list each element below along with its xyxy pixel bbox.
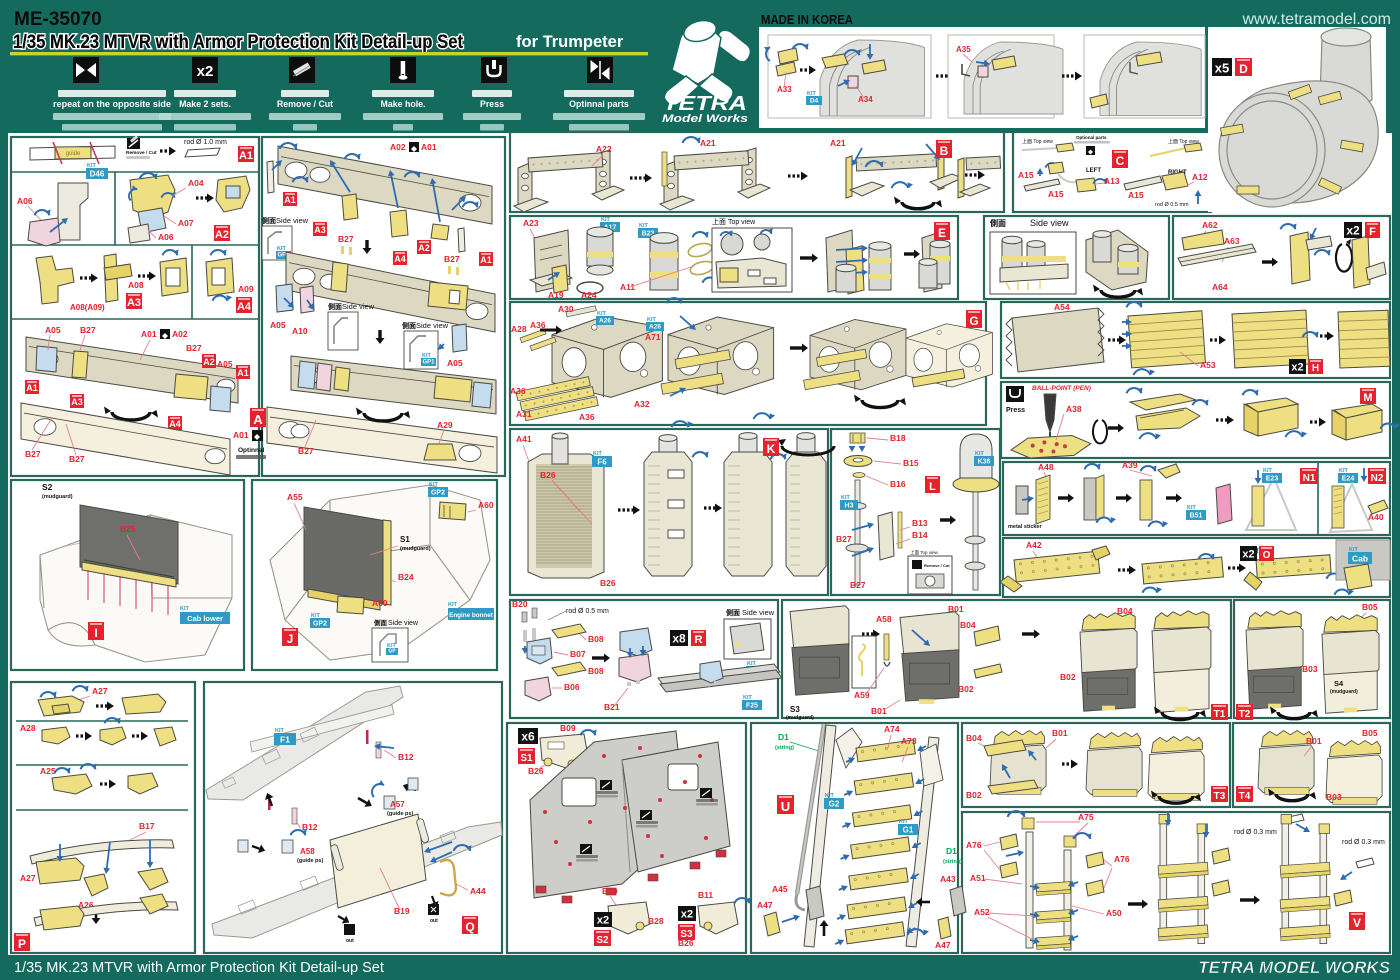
svg-text:A47: A47 — [757, 900, 773, 910]
svg-text:A50: A50 — [1106, 908, 1122, 918]
svg-text:A05: A05 — [217, 359, 233, 369]
svg-text:BALL-POINT (PEN): BALL-POINT (PEN) — [1032, 385, 1091, 392]
svg-text:B27: B27 — [298, 446, 314, 456]
svg-text:B21: B21 — [604, 702, 620, 712]
svg-text:A28: A28 — [511, 324, 527, 334]
svg-text:A21: A21 — [830, 138, 846, 148]
svg-text:Press: Press — [1006, 407, 1025, 414]
svg-text:S3: S3 — [790, 705, 800, 714]
svg-text:S1: S1 — [400, 535, 410, 544]
svg-text:KIT: KIT — [448, 602, 458, 608]
svg-text:A57: A57 — [390, 800, 405, 809]
svg-text:A05: A05 — [447, 358, 463, 368]
svg-text:B08: B08 — [588, 634, 604, 644]
svg-text:A71: A71 — [645, 332, 661, 342]
svg-text:x2: x2 — [1242, 549, 1254, 561]
svg-text:A02: A02 — [172, 329, 188, 339]
svg-text:Side view: Side view — [416, 321, 449, 330]
svg-text:for Trumpeter: for Trumpeter — [516, 33, 624, 51]
svg-text:T4: T4 — [1239, 791, 1251, 802]
svg-text:A34: A34 — [858, 95, 873, 104]
svg-text:B12: B12 — [398, 752, 414, 762]
svg-text:TETRA MODEL WORKS: TETRA MODEL WORKS — [1198, 958, 1390, 977]
svg-text:J: J — [287, 632, 294, 646]
svg-text:(mudguard): (mudguard) — [400, 546, 431, 552]
svg-text:A01: A01 — [233, 430, 249, 440]
svg-text:R: R — [695, 634, 703, 646]
svg-text:A06: A06 — [17, 196, 33, 206]
svg-text:B27: B27 — [25, 449, 41, 459]
svg-text:U: U — [781, 799, 790, 814]
svg-text:B26: B26 — [540, 470, 556, 480]
svg-text:B14: B14 — [912, 530, 928, 540]
svg-text:K: K — [767, 442, 776, 456]
svg-text:rod Ø 0.5 mm: rod Ø 0.5 mm — [1155, 202, 1189, 208]
svg-text:A01: A01 — [141, 329, 157, 339]
svg-text:T1: T1 — [1214, 709, 1226, 720]
svg-text:Side view: Side view — [388, 620, 419, 627]
svg-text:A2: A2 — [203, 357, 215, 367]
svg-text:x5: x5 — [1215, 61, 1229, 76]
svg-text:N2: N2 — [1371, 473, 1384, 484]
svg-text:F: F — [1369, 226, 1376, 238]
svg-text:Optional parts: Optional parts — [1076, 135, 1107, 140]
svg-text:A45: A45 — [772, 884, 788, 894]
svg-text:上面 Top view: 上面 Top view — [910, 549, 939, 556]
svg-text:A12: A12 — [1192, 172, 1208, 182]
svg-text:D: D — [1239, 62, 1248, 76]
svg-text:側面: 側面 — [373, 618, 388, 627]
svg-text:B27: B27 — [186, 343, 202, 353]
svg-text:B01: B01 — [1052, 728, 1068, 738]
svg-text:I: I — [94, 626, 97, 640]
svg-text:側面: 側面 — [401, 321, 416, 330]
svg-text:rod Ø 0.3 mm: rod Ø 0.3 mm — [1234, 829, 1277, 836]
svg-text:A4: A4 — [394, 254, 406, 264]
svg-text:側面: 側面 — [725, 608, 740, 617]
svg-text:(string): (string) — [943, 859, 962, 865]
svg-text:B04: B04 — [960, 620, 976, 630]
svg-text:A3: A3 — [314, 225, 326, 235]
svg-text:B03: B03 — [1326, 792, 1342, 802]
svg-text:A76: A76 — [966, 840, 982, 850]
svg-text:A15: A15 — [1128, 190, 1144, 200]
svg-text:A47: A47 — [935, 940, 951, 950]
svg-text:A48: A48 — [1038, 462, 1054, 472]
svg-text:A73: A73 — [901, 736, 917, 746]
svg-text:A15: A15 — [1018, 170, 1034, 180]
svg-text:metal sticker: metal sticker — [1008, 524, 1042, 530]
svg-text:A22: A22 — [596, 144, 612, 154]
svg-text:A13: A13 — [1104, 176, 1120, 186]
svg-text:A63: A63 — [1224, 236, 1240, 246]
svg-text:Side view: Side view — [1030, 218, 1069, 228]
svg-text:(guide ps): (guide ps) — [297, 858, 323, 864]
svg-text:A11: A11 — [620, 282, 635, 292]
svg-text:A1: A1 — [239, 150, 253, 162]
svg-text:B: B — [940, 144, 949, 158]
svg-text:guide: guide — [66, 151, 81, 157]
svg-text:C: C — [1116, 154, 1125, 168]
svg-text:A1: A1 — [284, 195, 296, 205]
svg-text:Q: Q — [465, 920, 474, 934]
svg-text:A30: A30 — [558, 304, 574, 314]
svg-text:A25: A25 — [40, 766, 56, 776]
svg-text:rod Ø 1.0 mm: rod Ø 1.0 mm — [184, 139, 227, 146]
svg-text:B07: B07 — [570, 649, 586, 659]
svg-text:A3: A3 — [71, 397, 83, 407]
svg-text:Remove / Cut: Remove / Cut — [126, 150, 157, 156]
svg-text:B08: B08 — [588, 666, 604, 676]
svg-text:A55: A55 — [287, 492, 303, 502]
svg-text:MADE IN KOREA: MADE IN KOREA — [761, 12, 854, 27]
svg-text:A54: A54 — [1054, 302, 1070, 312]
svg-text:B01: B01 — [1306, 736, 1322, 746]
svg-text:A23: A23 — [523, 218, 539, 228]
svg-text:(mudguard): (mudguard) — [786, 715, 814, 721]
svg-text:O: O — [1263, 550, 1271, 561]
svg-text:A19: A19 — [548, 290, 564, 300]
svg-text:B25: B25 — [120, 524, 136, 534]
svg-text:D1: D1 — [946, 846, 957, 856]
svg-text:A09: A09 — [238, 284, 254, 294]
svg-text:上面 Top view: 上面 Top view — [1022, 138, 1053, 145]
svg-text:A10: A10 — [292, 326, 308, 336]
svg-text:B51: B51 — [1190, 512, 1203, 519]
svg-text:Cab lower: Cab lower — [187, 614, 223, 623]
svg-text:B10: B10 — [602, 886, 618, 896]
svg-text:H3: H3 — [845, 502, 854, 509]
svg-text:A31: A31 — [516, 409, 532, 419]
svg-text:A58: A58 — [300, 847, 315, 856]
svg-text:H: H — [1312, 363, 1319, 374]
svg-text:A: A — [253, 412, 263, 427]
svg-text:S1: S1 — [520, 753, 533, 764]
svg-text:A26: A26 — [649, 323, 661, 330]
svg-text:S2: S2 — [596, 935, 609, 946]
svg-text:B06: B06 — [564, 682, 580, 692]
svg-text:B27: B27 — [850, 580, 866, 590]
svg-text:E23: E23 — [1266, 475, 1279, 482]
svg-text:KIT: KIT — [180, 606, 190, 612]
svg-text:A62: A62 — [1202, 220, 1218, 230]
svg-text:D4: D4 — [810, 97, 819, 104]
svg-text:A3: A3 — [127, 297, 141, 309]
svg-text:E24: E24 — [1342, 475, 1355, 482]
svg-text:B27: B27 — [80, 325, 96, 335]
svg-text:側面: 側面 — [327, 302, 342, 311]
svg-text:A43: A43 — [940, 874, 956, 884]
svg-text:A76: A76 — [1114, 854, 1130, 864]
svg-text:Optinnal: Optinnal — [238, 447, 265, 454]
svg-text:B18: B18 — [890, 433, 906, 443]
svg-text:A4: A4 — [169, 419, 181, 429]
svg-text:A4: A4 — [237, 301, 252, 313]
svg-text:B09: B09 — [560, 723, 576, 733]
svg-text:B27: B27 — [338, 234, 354, 244]
svg-text:Optinnal parts: Optinnal parts — [569, 99, 629, 109]
svg-text:1/35 MK.23 MTVR with Armor Pro: 1/35 MK.23 MTVR with Armor Protection Ki… — [13, 32, 464, 53]
svg-text:A52: A52 — [974, 907, 990, 917]
svg-text:A05: A05 — [45, 325, 61, 335]
svg-text:A58: A58 — [876, 614, 892, 624]
svg-text:A53: A53 — [1200, 360, 1216, 370]
svg-text:A1: A1 — [26, 383, 38, 393]
svg-text:A24: A24 — [581, 290, 597, 300]
svg-text:A41: A41 — [516, 434, 532, 444]
svg-text:GP2: GP2 — [313, 620, 327, 627]
svg-text:GP2: GP2 — [431, 489, 445, 496]
svg-text:B13: B13 — [912, 518, 928, 528]
svg-text:A64: A64 — [1212, 282, 1228, 292]
svg-text:T2: T2 — [1239, 709, 1251, 720]
svg-text:x2: x2 — [1291, 362, 1303, 374]
svg-text:A74: A74 — [884, 724, 900, 734]
svg-text:B05: B05 — [1362, 602, 1378, 612]
svg-text:L: L — [929, 481, 936, 493]
svg-text:N1: N1 — [1303, 473, 1316, 484]
svg-text:A04: A04 — [188, 178, 204, 188]
svg-text:Remove / Cut: Remove / Cut — [924, 563, 950, 568]
svg-text:A28: A28 — [20, 723, 36, 733]
svg-text:B27: B27 — [444, 254, 460, 264]
svg-text:D46: D46 — [90, 169, 105, 178]
svg-text:rod Ø 0.5 mm: rod Ø 0.5 mm — [566, 608, 609, 615]
svg-text:B20: B20 — [512, 599, 528, 609]
svg-text:(mudguard): (mudguard) — [1330, 689, 1358, 695]
svg-text:S2: S2 — [42, 482, 53, 492]
svg-text:B01: B01 — [871, 706, 887, 716]
svg-text:上面 Top view: 上面 Top view — [712, 217, 756, 226]
svg-text:B02: B02 — [1060, 672, 1076, 682]
svg-text:A36: A36 — [510, 386, 526, 396]
svg-text:A32: A32 — [634, 399, 650, 409]
svg-text:B28: B28 — [648, 916, 664, 926]
svg-text:A08(A09): A08(A09) — [70, 303, 105, 312]
svg-text:A01: A01 — [421, 142, 437, 152]
svg-text:B03: B03 — [1302, 664, 1318, 674]
svg-text:A44: A44 — [470, 886, 486, 896]
svg-text:A06: A06 — [158, 232, 174, 242]
svg-text:B16: B16 — [890, 479, 906, 489]
svg-text:B24: B24 — [398, 572, 414, 582]
svg-text:A39: A39 — [1122, 460, 1138, 470]
svg-text:A40: A40 — [1368, 512, 1384, 522]
svg-text:A1: A1 — [237, 368, 249, 378]
svg-text:A60: A60 — [478, 500, 494, 510]
svg-text:A38: A38 — [1066, 404, 1082, 414]
svg-text:A2: A2 — [215, 229, 229, 241]
svg-text:P: P — [18, 937, 26, 951]
svg-text:ME-35070: ME-35070 — [14, 9, 102, 30]
svg-text:A02: A02 — [390, 142, 406, 152]
svg-text:A26: A26 — [599, 317, 611, 324]
svg-text:A08: A08 — [128, 280, 144, 290]
svg-text:A2: A2 — [418, 243, 430, 253]
svg-text:x6: x6 — [521, 730, 535, 744]
svg-text:Model Works: Model Works — [662, 113, 748, 125]
svg-text:G1: G1 — [903, 825, 914, 834]
svg-text:Engine bonnet: Engine bonnet — [449, 612, 494, 619]
svg-text:B02: B02 — [966, 790, 982, 800]
svg-text:www.tetramodel.com: www.tetramodel.com — [1242, 11, 1392, 28]
svg-text:B27: B27 — [836, 534, 852, 544]
svg-text:F6: F6 — [597, 457, 607, 466]
svg-text:T3: T3 — [1214, 791, 1226, 802]
svg-text:B19: B19 — [394, 906, 410, 916]
svg-text:out: out — [346, 938, 354, 944]
svg-text:1/35 MK.23 MTVR with Armor Pro: 1/35 MK.23 MTVR with Armor Protection Ki… — [14, 960, 384, 976]
svg-text:TETRA: TETRA — [663, 93, 747, 115]
svg-text:B26: B26 — [600, 578, 616, 588]
svg-text:Press: Press — [480, 99, 504, 109]
svg-text:x8: x8 — [672, 632, 686, 646]
svg-text:Make 2 sets.: Make 2 sets. — [179, 99, 231, 109]
svg-text:Side view: Side view — [342, 302, 375, 311]
svg-text:側面: 側面 — [989, 218, 1006, 228]
svg-text:G2: G2 — [829, 799, 840, 808]
svg-text:out: out — [430, 918, 438, 924]
svg-text:E: E — [938, 226, 946, 240]
svg-text:A75: A75 — [1078, 812, 1094, 822]
svg-text:(string): (string) — [775, 745, 794, 751]
svg-text:x2: x2 — [1346, 224, 1360, 238]
svg-text:Side view: Side view — [742, 608, 775, 617]
svg-text:x2: x2 — [197, 63, 214, 80]
svg-text:A29: A29 — [437, 420, 453, 430]
svg-text:A05: A05 — [270, 320, 286, 330]
svg-text:rod Ø 0.3 mm: rod Ø 0.3 mm — [1342, 839, 1385, 846]
svg-text:B11: B11 — [698, 890, 713, 900]
svg-text:A21: A21 — [700, 138, 716, 148]
svg-text:A60: A60 — [372, 598, 388, 608]
svg-text:Make hole.: Make hole. — [381, 99, 426, 109]
svg-text:D1: D1 — [778, 732, 789, 742]
svg-text:B04: B04 — [1117, 606, 1133, 616]
svg-text:G: G — [969, 314, 978, 328]
svg-text:x2: x2 — [681, 909, 693, 921]
svg-text:LEFT: LEFT — [1086, 168, 1101, 174]
svg-text:A36: A36 — [579, 412, 595, 422]
svg-text:B27: B27 — [69, 454, 85, 464]
svg-text:S4: S4 — [1334, 679, 1344, 688]
svg-text:Side view: Side view — [276, 216, 309, 225]
svg-text:A42: A42 — [1026, 540, 1042, 550]
svg-text:B04: B04 — [966, 733, 982, 743]
svg-text:F25: F25 — [746, 702, 758, 709]
svg-text:B05: B05 — [1362, 728, 1378, 738]
svg-text:F1: F1 — [280, 734, 290, 744]
svg-text:B15: B15 — [903, 458, 919, 468]
svg-text:K36: K36 — [978, 458, 991, 465]
svg-text:x2: x2 — [597, 915, 609, 927]
svg-text:M: M — [1363, 392, 1372, 404]
svg-text:GP: GP — [388, 648, 396, 654]
svg-text:A07: A07 — [178, 218, 194, 228]
svg-text:Remove / Cut: Remove / Cut — [277, 99, 333, 109]
svg-text:A51: A51 — [970, 873, 986, 883]
svg-text:A1: A1 — [480, 255, 492, 265]
svg-text:側面: 側面 — [261, 216, 276, 225]
svg-text:V: V — [1353, 916, 1361, 930]
svg-text:A27: A27 — [92, 686, 108, 696]
svg-text:B26: B26 — [678, 938, 694, 948]
svg-text:repeat on the opposite side: repeat on the opposite side — [53, 99, 171, 109]
svg-text:GP1: GP1 — [422, 359, 435, 365]
svg-text:(mudguard): (mudguard) — [42, 494, 73, 500]
svg-text:Cab: Cab — [1352, 553, 1368, 563]
svg-text:A15: A15 — [1048, 189, 1064, 199]
svg-text:B17: B17 — [139, 821, 155, 831]
svg-text:B02: B02 — [958, 684, 974, 694]
svg-text:A27: A27 — [20, 873, 36, 883]
svg-text:A35: A35 — [956, 45, 971, 54]
